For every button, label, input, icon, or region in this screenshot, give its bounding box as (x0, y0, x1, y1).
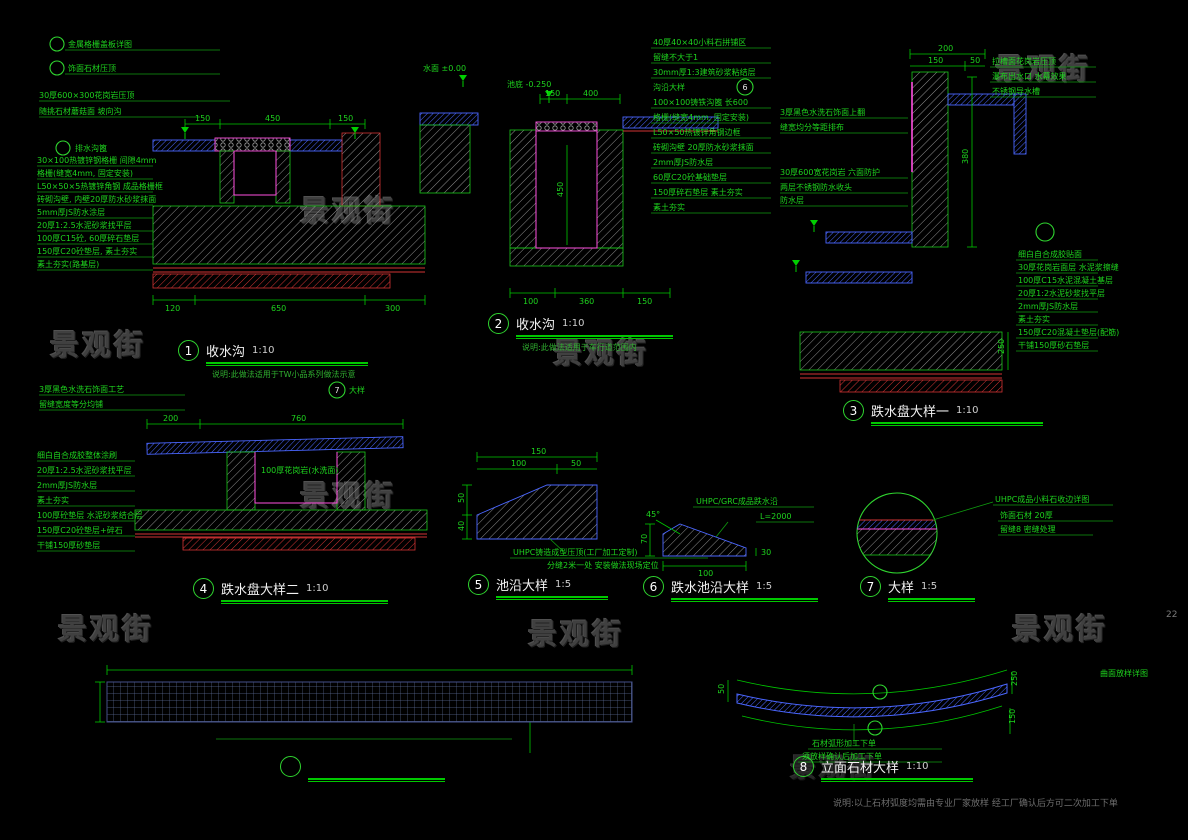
d3-dimensions-top: 200 150 50 (910, 44, 985, 71)
title-underline (871, 422, 1043, 426)
detail-7-drawing: UHPC成品小料石收边详图 饰面石材 20厚 留缝8 密缝处理 (845, 478, 1115, 586)
svg-text:砖砌沟壁 20厚防水砂浆抹面: 砖砌沟壁 20厚防水砂浆抹面 (653, 142, 754, 152)
svg-text:排水沟篦: 排水沟篦 (75, 143, 107, 153)
svg-text:格栅(缝宽4mm, 固定安装): 格栅(缝宽4mm, 固定安装) (37, 168, 133, 178)
svg-text:素土夯实(路基层): 素土夯实(路基层) (37, 259, 99, 269)
detail-3-drawing: 200 150 50 3厚黑色水洗石饰面上翻 缝宽均分等距排布 30厚600宽花… (780, 42, 1100, 397)
title-underline (516, 335, 673, 339)
svg-text:400: 400 (583, 89, 598, 98)
svg-text:2mm厚JS防水层: 2mm厚JS防水层 (37, 480, 97, 490)
svg-text:格栅(缝宽4mm, 固定安装): 格栅(缝宽4mm, 固定安装) (653, 112, 749, 122)
d4-top-labels: 3厚黑色水洗石饰面工艺 留缝宽度等分均铺 7 大样 (39, 382, 365, 410)
watermark-7: 景观街 (528, 611, 624, 653)
detail-6-drawing: UHPC/GRC成品跌水沿 L=2000 45° 70 100 30 (638, 492, 818, 580)
detail-6-scale: 1:5 (756, 581, 772, 592)
detail-2-name: 收水沟 (516, 314, 555, 333)
svg-text:20厚1:2.5水泥砂浆找平层: 20厚1:2.5水泥砂浆找平层 (37, 220, 132, 230)
watermark-6: 景观街 (58, 606, 154, 648)
d7-section-body (857, 520, 937, 555)
detail-6-title: 6 跌水池沿大样 1:5 (643, 576, 818, 602)
d6-labels: UHPC/GRC成品跌水沿 L=2000 (693, 496, 814, 537)
cad-sheet: 景观街 景观街 景观街 景观街 景观街 景观街 景观街 景观街 景观街 金属格栅… (0, 0, 1188, 840)
svg-text:随挑石材蘑菇面 坡向沟: 随挑石材蘑菇面 坡向沟 (39, 106, 122, 116)
svg-text:5mm厚JS防水涂层: 5mm厚JS防水涂层 (37, 207, 105, 217)
detail-4-title: 4 跌水盘大样二 1:10 (193, 578, 388, 604)
svg-text:细白自合成胶贴面: 细白自合成胶贴面 (1018, 249, 1082, 259)
svg-text:金属格栅盖板详图: 金属格栅盖板详图 (68, 39, 132, 49)
d3-right-top-labels: 拉槽面花岗岩压顶 瀑布出水口 水幕效果 不锈钢导水槽 (990, 56, 1096, 97)
svg-text:瀑布出水口 水幕效果: 瀑布出水口 水幕效果 (992, 71, 1067, 81)
detail-5-name: 池沿大样 (496, 575, 548, 594)
svg-text:200: 200 (938, 44, 953, 53)
detail-6-number: 6 (643, 576, 664, 597)
svg-text:20厚1:2水泥砂浆找平层: 20厚1:2水泥砂浆找平层 (1018, 288, 1105, 298)
svg-text:150: 150 (637, 297, 652, 306)
detail-4-drawing: 3厚黑色水洗石饰面工艺 留缝宽度等分均铺 7 大样 100厚花岗岩(水洗面) 细… (35, 378, 420, 568)
detail-3-title: 3 跌水盘大样一 1:10 (843, 400, 1043, 426)
svg-text:不锈钢导水槽: 不锈钢导水槽 (992, 86, 1040, 96)
svg-text:150: 150 (928, 56, 943, 65)
svg-text:40厚40×40小料石拼铺区: 40厚40×40小料石拼铺区 (653, 37, 746, 47)
svg-text:50: 50 (457, 493, 466, 503)
svg-text:沟沿大样: 沟沿大样 (653, 82, 685, 92)
detail-5-scale: 1:5 (555, 579, 571, 590)
svg-text:留缝不大于1: 留缝不大于1 (653, 52, 698, 62)
svg-text:饰面石材 20厚: 饰面石材 20厚 (1000, 510, 1053, 520)
svg-text:50: 50 (970, 56, 980, 65)
svg-text:100: 100 (511, 459, 526, 468)
detail-5-number: 5 (468, 574, 489, 595)
detail-1-note: 说明:此做法适用于TW小品系列做法示意 (212, 369, 368, 380)
svg-text:250: 250 (1010, 671, 1019, 686)
svg-text:UHPC成品小料石收边详图: UHPC成品小料石收边详图 (995, 494, 1089, 504)
svg-text:砖砌沟壁, 内壁20厚防水砂浆抹面: 砖砌沟壁, 内壁20厚防水砂浆抹面 (37, 194, 156, 204)
svg-text:干铺150厚砂垫层: 干铺150厚砂垫层 (37, 540, 100, 550)
title-underline (821, 778, 973, 782)
svg-text:2mm厚JS防水层: 2mm厚JS防水层 (653, 157, 713, 167)
svg-text:150: 150 (545, 89, 560, 98)
svg-text:100: 100 (523, 297, 538, 306)
detail-4-scale: 1:10 (306, 583, 328, 594)
svg-text:100厚C15水泥混凝土基层: 100厚C15水泥混凝土基层 (1018, 275, 1113, 285)
title-underline (308, 778, 445, 782)
svg-text:30×100热镀锌钢格栅 间隙4mm: 30×100热镀锌钢格栅 间隙4mm (37, 155, 157, 165)
svg-text:60厚C20砼基础垫层: 60厚C20砼基础垫层 (653, 172, 727, 182)
logo-drawing (92, 658, 644, 756)
detail-4-number: 4 (193, 578, 214, 599)
title-underline (221, 600, 388, 604)
detail-3-number: 3 (843, 400, 864, 421)
svg-text:360: 360 (579, 297, 594, 306)
svg-text:UHPC铸造成型压顶(工厂加工定制): UHPC铸造成型压顶(工厂加工定制) (513, 547, 638, 557)
d6-profile: 45° (646, 510, 746, 556)
detail-7-number: 7 (860, 576, 881, 597)
svg-text:7: 7 (334, 386, 339, 395)
svg-text:L=2000: L=2000 (760, 512, 792, 521)
d4-left-labels: 细白自合成胶整体涂刷 20厚1:2.5水泥砂浆找平层 2mm厚JS防水层 素土夯… (37, 450, 143, 551)
svg-text:留缝宽度等分均铺: 留缝宽度等分均铺 (39, 399, 103, 409)
svg-text:100×100铸铁沟篦 长600: 100×100铸铁沟篦 长600 (653, 97, 748, 107)
d1-callouts: 金属格栅盖板详图 饰面石材压顶 30厚600×300花岗岩压顶 随挑石材蘑菇面 … (39, 37, 230, 155)
detail-1-title: 1 收水沟 1:10 说明:此做法适用于TW小品系列做法示意 (178, 340, 368, 380)
svg-text:40: 40 (457, 521, 466, 531)
d4-section-body: 100厚花岗岩(水洗面) (135, 437, 427, 550)
detail-4-name: 跌水盘大样二 (221, 579, 299, 598)
detail-7-scale: 1:5 (921, 581, 937, 592)
svg-text:池底 -0.250: 池底 -0.250 (507, 79, 551, 89)
svg-text:素土夯实: 素土夯实 (37, 495, 69, 505)
svg-text:30: 30 (761, 548, 771, 557)
svg-text:3厚黑色水洗石饰面工艺: 3厚黑色水洗石饰面工艺 (39, 384, 124, 394)
svg-text:150: 150 (195, 114, 210, 123)
svg-text:300: 300 (385, 304, 400, 313)
d5-profile (477, 485, 597, 553)
svg-text:大样: 大样 (349, 385, 365, 395)
detail-5-title: 5 池沿大样 1:5 (468, 574, 608, 600)
svg-text:防水层: 防水层 (780, 195, 804, 205)
svg-text:150: 150 (1008, 709, 1017, 724)
svg-text:UHPC/GRC成品跌水沿: UHPC/GRC成品跌水沿 (696, 496, 778, 506)
detail-7-name: 大样 (888, 577, 914, 596)
svg-text:150厚C20砼垫层, 素土夯实: 150厚C20砼垫层, 素土夯实 (37, 246, 137, 256)
svg-text:2mm厚JS防水层: 2mm厚JS防水层 (1018, 301, 1078, 311)
detail-8-number: 8 (793, 756, 814, 777)
detail-3-name: 跌水盘大样一 (871, 401, 949, 420)
svg-text:两层不锈钢防水收头: 两层不锈钢防水收头 (780, 182, 852, 192)
svg-text:150: 150 (338, 114, 353, 123)
svg-text:70: 70 (640, 534, 649, 544)
svg-text:素土夯实: 素土夯实 (1018, 314, 1050, 324)
d1-layer-labels: 30×100热镀锌钢格栅 间隙4mm 格栅(缝宽4mm, 固定安装) L50×5… (37, 155, 163, 270)
svg-text:450: 450 (265, 114, 280, 123)
d1-section-body (153, 133, 425, 288)
svg-text:150厚C20混凝土垫层(配筋): 150厚C20混凝土垫层(配筋) (1018, 327, 1119, 337)
svg-text:250: 250 (997, 339, 1006, 354)
logo-title (280, 756, 445, 782)
detail-8-drawing: 250 150 50 石材弧形加工下单 须放样确认后加工下单 (712, 642, 1032, 774)
svg-text:缝宽均分等距排布: 缝宽均分等距排布 (780, 122, 844, 132)
svg-text:45°: 45° (646, 510, 660, 519)
d2-levels: 水面 ±0.00 池底 -0.250 (423, 63, 553, 103)
logo-panel (107, 682, 632, 722)
detail-2-number: 2 (488, 313, 509, 334)
title-underline (888, 598, 975, 602)
logo-number (280, 756, 301, 777)
svg-text:石材弧形加工下单: 石材弧形加工下单 (812, 738, 876, 748)
svg-text:120: 120 (165, 304, 180, 313)
detail-8-scale: 1:10 (906, 761, 928, 772)
d8-curved-band (737, 670, 1007, 735)
d3-right-labels: 细白自合成胶贴面 30厚花岗岩面层 水泥浆擦缝 100厚C15水泥混凝土基层 2… (1016, 249, 1119, 351)
svg-text:760: 760 (291, 414, 306, 423)
detail-2-note: 说明:此做法适用于车行道范围内 (522, 342, 673, 353)
detail-8-name: 立面石材大样 (821, 757, 899, 776)
svg-text:饰面石材压顶: 饰面石材压顶 (68, 63, 116, 73)
detail-2-scale: 1:10 (562, 318, 584, 329)
svg-text:150厚碎石垫层 素土夯实: 150厚碎石垫层 素土夯实 (653, 187, 743, 197)
svg-text:L50×50热镀锌角钢边框: L50×50热镀锌角钢边框 (653, 127, 741, 137)
page-number: 22 (1166, 610, 1177, 620)
title-underline (206, 362, 368, 366)
svg-text:L50×50×5热镀锌角钢 成品格栅框: L50×50×5热镀锌角钢 成品格栅框 (37, 181, 163, 191)
svg-text:30厚花岗岩面层 水泥浆擦缝: 30厚花岗岩面层 水泥浆擦缝 (1018, 262, 1119, 272)
svg-text:100厚C15砼, 60厚碎石垫层: 100厚C15砼, 60厚碎石垫层 (37, 233, 139, 243)
svg-text:30厚600宽花岗岩 六面防护: 30厚600宽花岗岩 六面防护 (780, 167, 880, 177)
svg-text:450: 450 (556, 182, 565, 197)
svg-text:6: 6 (742, 83, 747, 92)
detail-1-number: 1 (178, 340, 199, 361)
svg-text:380: 380 (961, 149, 970, 164)
detail-6-name: 跌水池沿大样 (671, 577, 749, 596)
detail-1-scale: 1:10 (252, 345, 274, 356)
d8-right-label: 曲面放样详图 (1100, 668, 1148, 679)
detail-2-title: 2 收水沟 1:10 说明:此做法适用于车行道范围内 (488, 313, 673, 353)
d3-dimensions-side: 380 250 (961, 77, 1008, 370)
svg-text:100厚砼垫层 水泥砂浆结合层: 100厚砼垫层 水泥砂浆结合层 (37, 510, 143, 520)
sheet-bottom-note: 说明:以上石材弧度均需由专业厂家放样 经工厂确认后方可二次加工下单 (833, 796, 1118, 809)
svg-text:素土夯实: 素土夯实 (653, 202, 685, 212)
svg-text:150: 150 (531, 447, 546, 456)
svg-text:干铺150厚砂石垫层: 干铺150厚砂石垫层 (1018, 340, 1089, 350)
svg-text:细白自合成胶整体涂刷: 细白自合成胶整体涂刷 (37, 450, 117, 460)
svg-text:3厚黑色水洗石饰面上翻: 3厚黑色水洗石饰面上翻 (780, 107, 865, 117)
detail-1-name: 收水沟 (206, 341, 245, 360)
d3-left-labels: 3厚黑色水洗石饰面上翻 缝宽均分等距排布 30厚600宽花岗岩 六面防护 两层不… (780, 107, 908, 206)
svg-text:50: 50 (571, 459, 581, 468)
svg-text:留缝8 密缝处理: 留缝8 密缝处理 (1000, 524, 1056, 534)
detail-1-drawing: 金属格栅盖板详图 饰面石材压顶 30厚600×300花岗岩压顶 随挑石材蘑菇面 … (35, 28, 415, 328)
svg-text:拉槽面花岗岩压顶: 拉槽面花岗岩压顶 (992, 56, 1056, 66)
svg-text:水面 ±0.00: 水面 ±0.00 (423, 63, 466, 73)
d7-labels: UHPC成品小料石收边详图 饰面石材 20厚 留缝8 密缝处理 (933, 494, 1113, 535)
title-underline (671, 598, 818, 602)
svg-text:100厚花岗岩(水洗面): 100厚花岗岩(水洗面) (261, 465, 339, 475)
title-underline (496, 596, 608, 600)
detail-3-scale: 1:10 (956, 405, 978, 416)
detail-7-title: 7 大样 1:5 (860, 576, 975, 602)
svg-text:30mm厚1:3建筑砂浆粘结层: 30mm厚1:3建筑砂浆粘结层 (653, 67, 756, 77)
svg-text:650: 650 (271, 304, 286, 313)
svg-text:200: 200 (163, 414, 178, 423)
d4-dimensions: 200 760 (147, 414, 403, 429)
detail-8-title: 8 立面石材大样 1:10 (793, 756, 973, 782)
detail-2-drawing: 水面 ±0.00 池底 -0.250 40厚40×40小料石拼铺区 留缝不大于1… (415, 35, 775, 327)
svg-text:30厚600×300花岗岩压顶: 30厚600×300花岗岩压顶 (39, 90, 134, 100)
d3-section-body (792, 72, 1054, 392)
svg-text:20厚1:2.5水泥砂浆找平层: 20厚1:2.5水泥砂浆找平层 (37, 465, 132, 475)
svg-text:150厚C20砼垫层+碎石: 150厚C20砼垫层+碎石 (37, 525, 123, 535)
svg-text:50: 50 (717, 684, 726, 694)
watermark-3: 景观街 (50, 322, 146, 364)
